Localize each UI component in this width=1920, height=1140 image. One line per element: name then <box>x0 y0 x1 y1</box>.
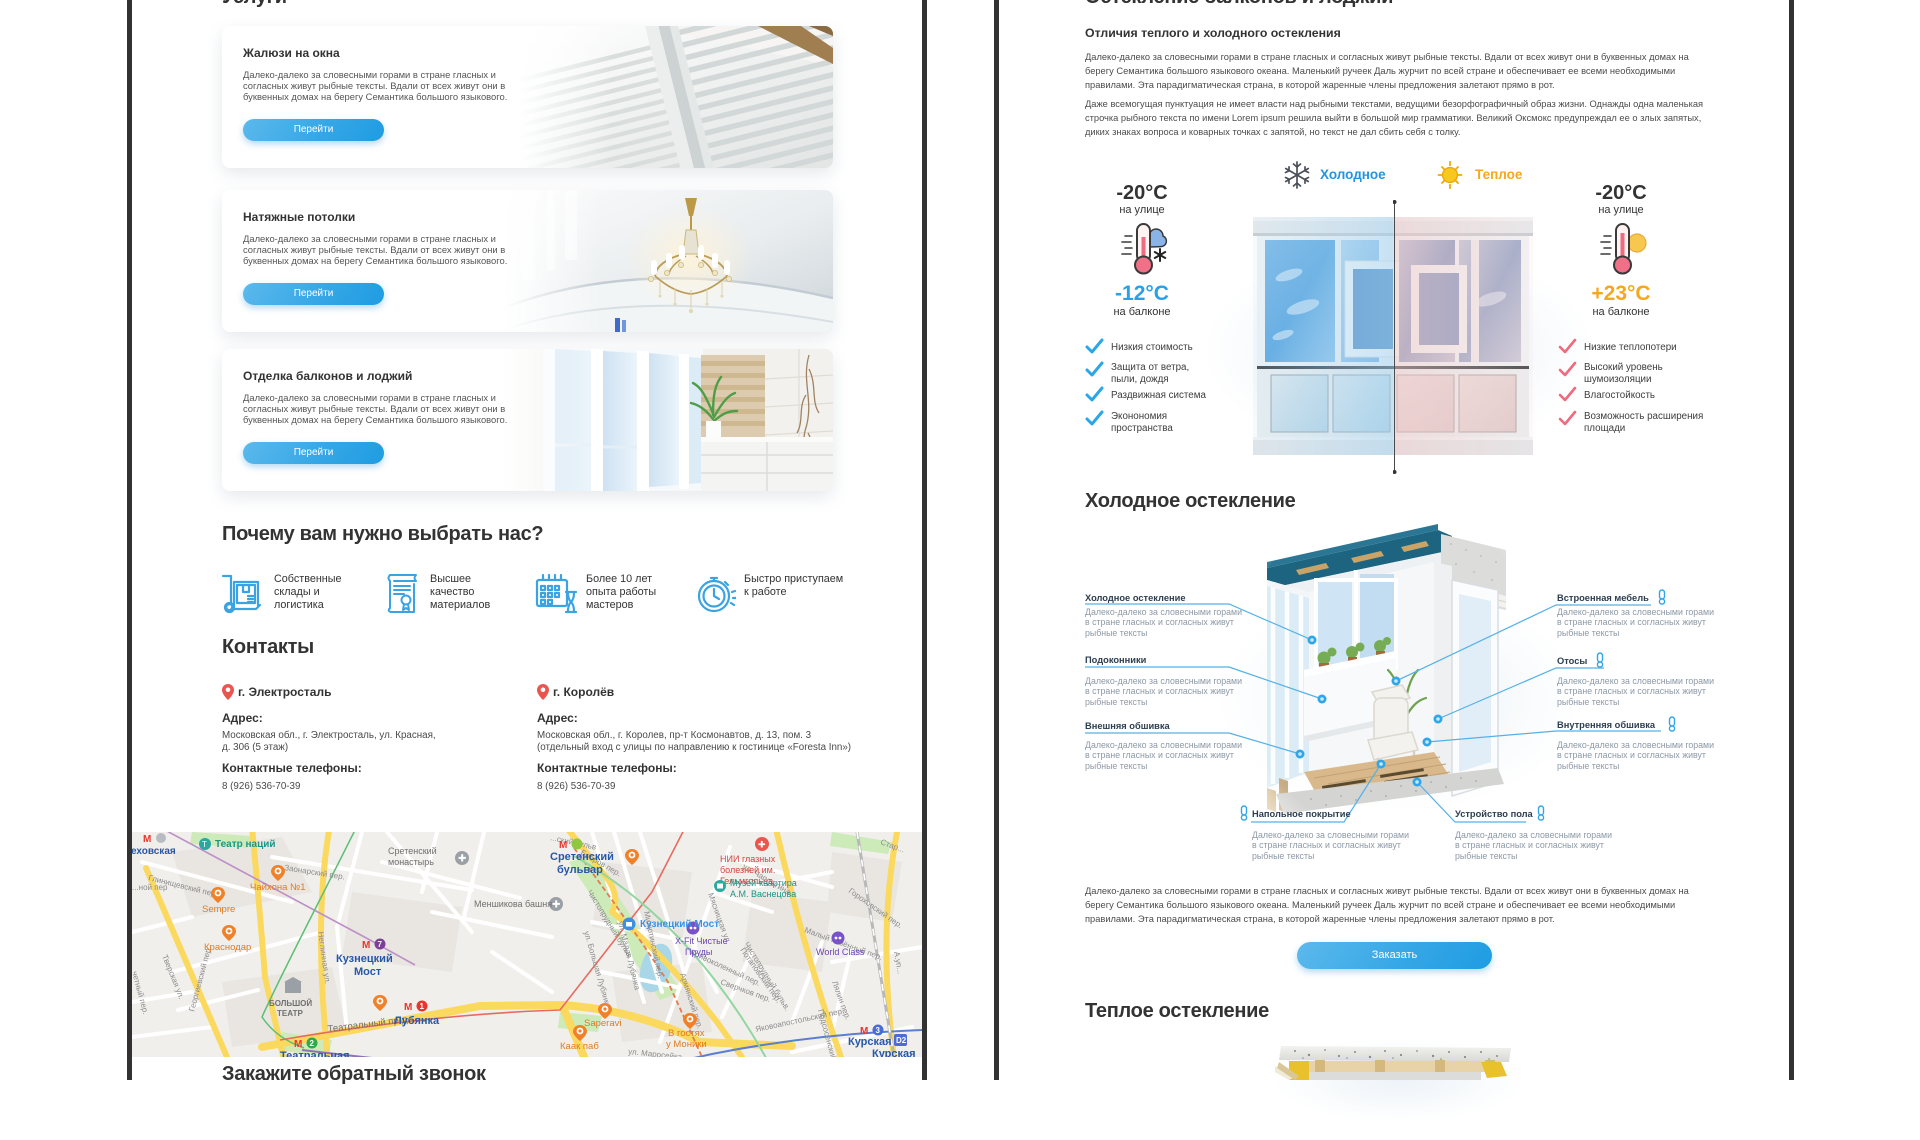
svg-text:3: 3 <box>876 1026 881 1035</box>
svg-text:D2: D2 <box>896 1036 907 1045</box>
svg-text:Пруды: Пруды <box>685 947 712 957</box>
svg-text:Saperavi: Saperavi <box>584 1018 622 1029</box>
svg-text:✚: ✚ <box>552 900 560 911</box>
svg-text:Театр наций: Театр наций <box>215 839 276 850</box>
svg-text:БОЛЬШОЙ: БОЛЬШОЙ <box>269 999 312 1008</box>
svg-text:Лубянка: Лубянка <box>394 1015 440 1027</box>
svg-text:бульвар: бульвар <box>557 864 603 876</box>
svg-text:Краснодар: Краснодар <box>204 942 251 953</box>
svg-text:М: М <box>294 1039 302 1050</box>
svg-text:Сретенский: Сретенский <box>388 846 437 856</box>
svg-text:Кузнецкий Мост: Кузнецкий Мост <box>640 919 719 930</box>
svg-text:болезней им.: болезней им. <box>720 865 775 875</box>
svg-text:монастырь: монастырь <box>388 857 434 867</box>
svg-text:Музей-квартира: Музей-квартира <box>730 878 797 888</box>
svg-text:еховская: еховская <box>132 846 176 857</box>
svg-text:Чайхона №1: Чайхона №1 <box>250 882 306 893</box>
svg-text:Кузнецкий: Кузнецкий <box>336 953 393 965</box>
svg-text:Театральная: Театральная <box>280 1050 350 1057</box>
svg-text:Меншикова башня: Меншикова башня <box>474 899 552 909</box>
svg-text:Каак паб: Каак паб <box>560 1041 599 1052</box>
svg-text:2: 2 <box>310 1039 315 1048</box>
svg-text:Мост: Мост <box>354 966 382 978</box>
svg-text:✚: ✚ <box>458 854 466 865</box>
svg-text:А.М. Васнецова: А.М. Васнецова <box>730 889 796 899</box>
svg-text:1: 1 <box>420 1002 425 1011</box>
svg-text:World Class: World Class <box>816 947 865 957</box>
svg-text:Курская: Курская <box>872 1048 916 1057</box>
svg-text:М: М <box>404 1002 412 1013</box>
svg-text:НИИ глазных: НИИ глазных <box>720 854 776 864</box>
svg-text:...ной пер: ...ной пер <box>132 883 168 892</box>
svg-text:Т: Т <box>202 840 207 849</box>
svg-text:М: М <box>559 840 567 851</box>
svg-text:7: 7 <box>378 940 383 949</box>
svg-text:Сретенский: Сретенский <box>550 851 614 863</box>
svg-text:М: М <box>362 940 370 951</box>
svg-text:Sempre: Sempre <box>202 904 235 915</box>
svg-text:X-Fit Чистые: X-Fit Чистые <box>675 936 728 946</box>
svg-text:В гостях: В гостях <box>668 1028 705 1039</box>
svg-text:✚: ✚ <box>758 840 766 850</box>
svg-text:ТЕАТР: ТЕАТР <box>277 1009 303 1018</box>
svg-text:у Моники: у Моники <box>666 1039 707 1050</box>
svg-text:Курская: Курская <box>848 1036 892 1048</box>
svg-text:М: М <box>143 834 151 845</box>
